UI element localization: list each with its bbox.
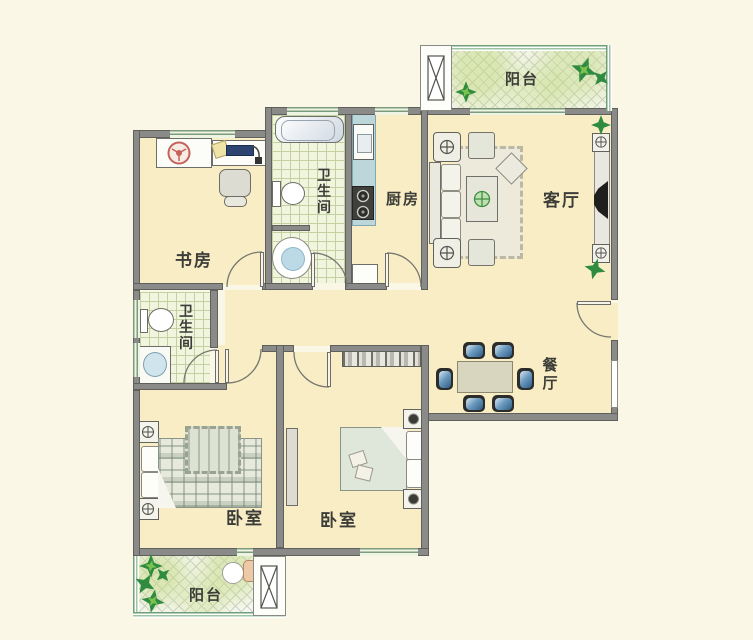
room-label-kitchen: 厨房 (386, 188, 420, 209)
label-char: 餐 (541, 356, 559, 374)
window-bathroom-left (133, 300, 140, 338)
dining-chair (517, 368, 534, 390)
wall (421, 108, 428, 290)
nightstand (137, 421, 159, 443)
window-kitchen (375, 107, 408, 115)
sofa-back (429, 162, 441, 244)
room-label-living: 客厅 (543, 186, 581, 211)
label-char: 间 (315, 200, 333, 216)
room-label-bathroom-left: 卫 生 间 (177, 304, 195, 352)
window-dining (611, 360, 618, 408)
wall (133, 383, 227, 390)
dining-chair (436, 368, 453, 390)
wall (611, 108, 618, 300)
toilet-left-bowl (148, 308, 174, 332)
bed-left-throw (185, 426, 241, 474)
room-label-dining: 餐 厅 (541, 356, 559, 392)
kitchen-stove (352, 186, 374, 220)
bathtub-inner (281, 120, 335, 141)
washbasin-bowl (143, 352, 167, 377)
label-char: 卫 (177, 304, 195, 320)
wall (210, 290, 218, 348)
desk-monitor (226, 145, 254, 156)
wall (421, 413, 618, 421)
wall (276, 345, 284, 548)
side-seat-top (468, 132, 495, 159)
wall (272, 225, 310, 231)
wall (265, 107, 272, 290)
label-char: 生 (177, 320, 195, 336)
room-label-bathroom-top: 卫 生 间 (315, 168, 333, 216)
balcony-bottom-door (237, 548, 253, 556)
kitchen-sink-basin (357, 134, 372, 153)
wall (265, 283, 313, 290)
balcony-sliding-door (470, 108, 565, 115)
wall (133, 130, 140, 290)
patio-table (222, 562, 244, 584)
label-char: 厅 (541, 374, 559, 392)
label-char: 生 (315, 184, 333, 200)
room-label-study: 书房 (175, 246, 213, 271)
window-bedroom-middle (360, 548, 418, 556)
room-label-bedroom-left: 卧室 (226, 504, 264, 529)
duct-shaft-top (420, 45, 452, 111)
toilet-top-bowl (281, 182, 305, 205)
dining-chair (463, 342, 485, 359)
wall (133, 283, 223, 290)
duct-shaft-bottom (253, 556, 286, 616)
study-chair-back (219, 169, 251, 197)
speaker-top (592, 133, 610, 152)
dining-chair (463, 395, 485, 412)
window-bathroom-top (287, 107, 338, 115)
study-chair-seat (224, 196, 247, 207)
wall (330, 345, 421, 352)
wall (421, 345, 429, 556)
label-char: 卫 (315, 168, 333, 184)
fridge (352, 264, 378, 285)
dining-table (457, 361, 513, 393)
bed-middle-fold (381, 427, 407, 460)
armchair-bottom (433, 238, 461, 268)
sofa-cushion (441, 164, 461, 191)
balcony-bottom-wall (133, 556, 139, 618)
window-bathroom-left (133, 343, 140, 377)
entry-threshold (611, 303, 618, 340)
wall (345, 283, 387, 290)
side-seat-bottom (468, 239, 495, 266)
nightstand (137, 498, 159, 520)
floor-plan: 阳台 客厅 厨房 卫 生 间 书房 卫 生 间 餐 厅 卧室 卧室 阳台 (0, 0, 753, 640)
bed-left-fold (158, 468, 176, 508)
window-study (170, 130, 235, 138)
balcony-top-wall (450, 45, 612, 51)
toilet-top-tank (272, 181, 281, 207)
toilet-left-tank (140, 309, 148, 333)
wall (133, 390, 140, 556)
room-label-balcony-bottom: 阳台 (189, 584, 223, 605)
room-label-balcony-top: 阳台 (505, 68, 539, 89)
speaker-bottom (592, 244, 610, 263)
room-label-bedroom-middle: 卧室 (320, 506, 358, 531)
dresser (286, 428, 298, 506)
coffee-table (466, 176, 498, 222)
dining-chair (492, 395, 514, 412)
study-desk-left (156, 138, 212, 168)
sofa-cushion (441, 191, 461, 218)
balcony-top-wall (606, 45, 612, 111)
spa-basin-water (281, 247, 305, 271)
dining-chair (492, 342, 514, 359)
hallway-floor (225, 290, 429, 346)
label-char: 间 (177, 336, 195, 352)
armchair-top (433, 132, 461, 162)
wall (345, 114, 352, 290)
